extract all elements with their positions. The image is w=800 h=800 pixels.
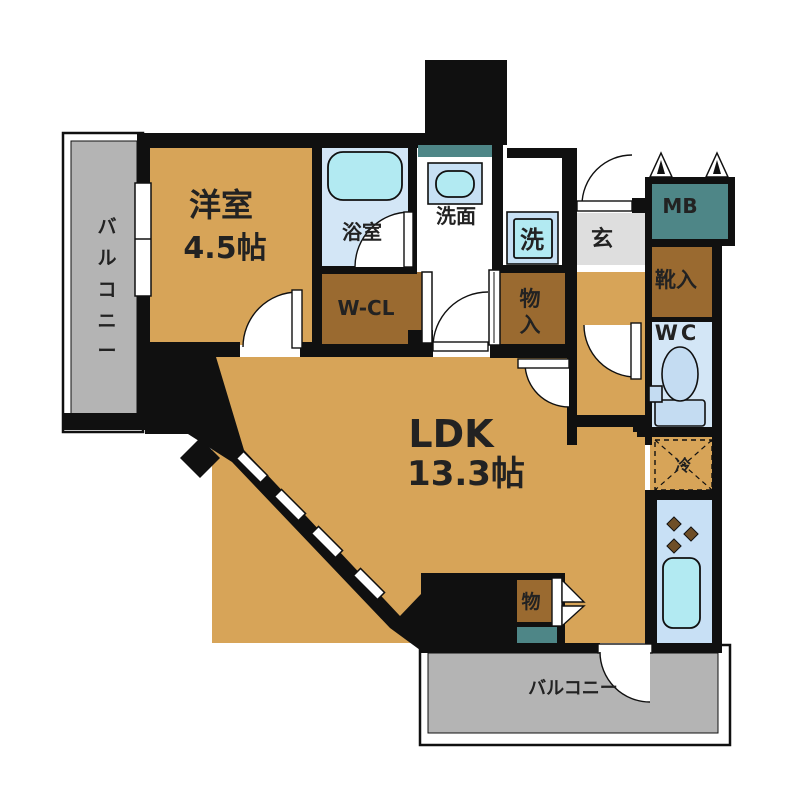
label-western-room-size: 4.5帖: [183, 231, 266, 266]
label-entrance: 玄: [591, 226, 613, 252]
svg-text:ル: ル: [97, 247, 116, 269]
counter-teal: [517, 627, 557, 643]
label-refrigerator: 冷: [675, 456, 691, 475]
bathtub-icon: [328, 152, 402, 200]
label-bathroom: 浴室: [342, 220, 382, 244]
window-balcony-west: [135, 183, 151, 296]
label-balcony-left: バ ル コ ニ ー: [97, 216, 116, 362]
label-ldk-size: 13.3帖: [407, 454, 525, 494]
label-meter-box: MB: [662, 194, 697, 218]
door-entrance: [577, 155, 632, 211]
label-ldk: LDK: [408, 412, 495, 456]
svg-text:バ: バ: [97, 216, 116, 238]
pipe-space-panel: [418, 145, 492, 157]
label-walk-in-closet: W-CL: [338, 296, 395, 320]
label-shoe-cabinet: 靴入: [655, 268, 697, 292]
closet-door-strip-wcl: [422, 272, 432, 343]
floor-plan-drawing: 洋室 4.5帖 LDK 13.3帖 浴室 洗面 洗 玄 MB 靴入 WC W-C…: [0, 0, 800, 800]
svg-text:ー: ー: [97, 340, 116, 362]
label-storage-hall-1: 物: [520, 287, 541, 311]
floor-plan: 洋室 4.5帖 LDK 13.3帖 浴室 洗面 洗 玄 MB 靴入 WC W-C…: [0, 0, 800, 800]
kitchen-sink-icon: [663, 558, 700, 628]
label-balcony-bottom: バルコニー: [528, 678, 618, 699]
label-storage-ldk: 物: [521, 590, 540, 613]
svg-text:ニ: ニ: [97, 310, 116, 332]
label-western-room: 洋室: [189, 186, 253, 224]
vent-icon: [650, 153, 728, 177]
label-washroom: 洗面: [436, 204, 476, 228]
label-washer: 洗: [520, 226, 544, 254]
label-storage-hall-2: 入: [520, 313, 541, 337]
closet-door-strip-monoire: [489, 270, 500, 345]
label-wc: WC: [655, 321, 700, 345]
svg-text:コ: コ: [97, 279, 116, 301]
washbasin-icon: [428, 163, 482, 204]
genkan-step: [577, 265, 645, 272]
